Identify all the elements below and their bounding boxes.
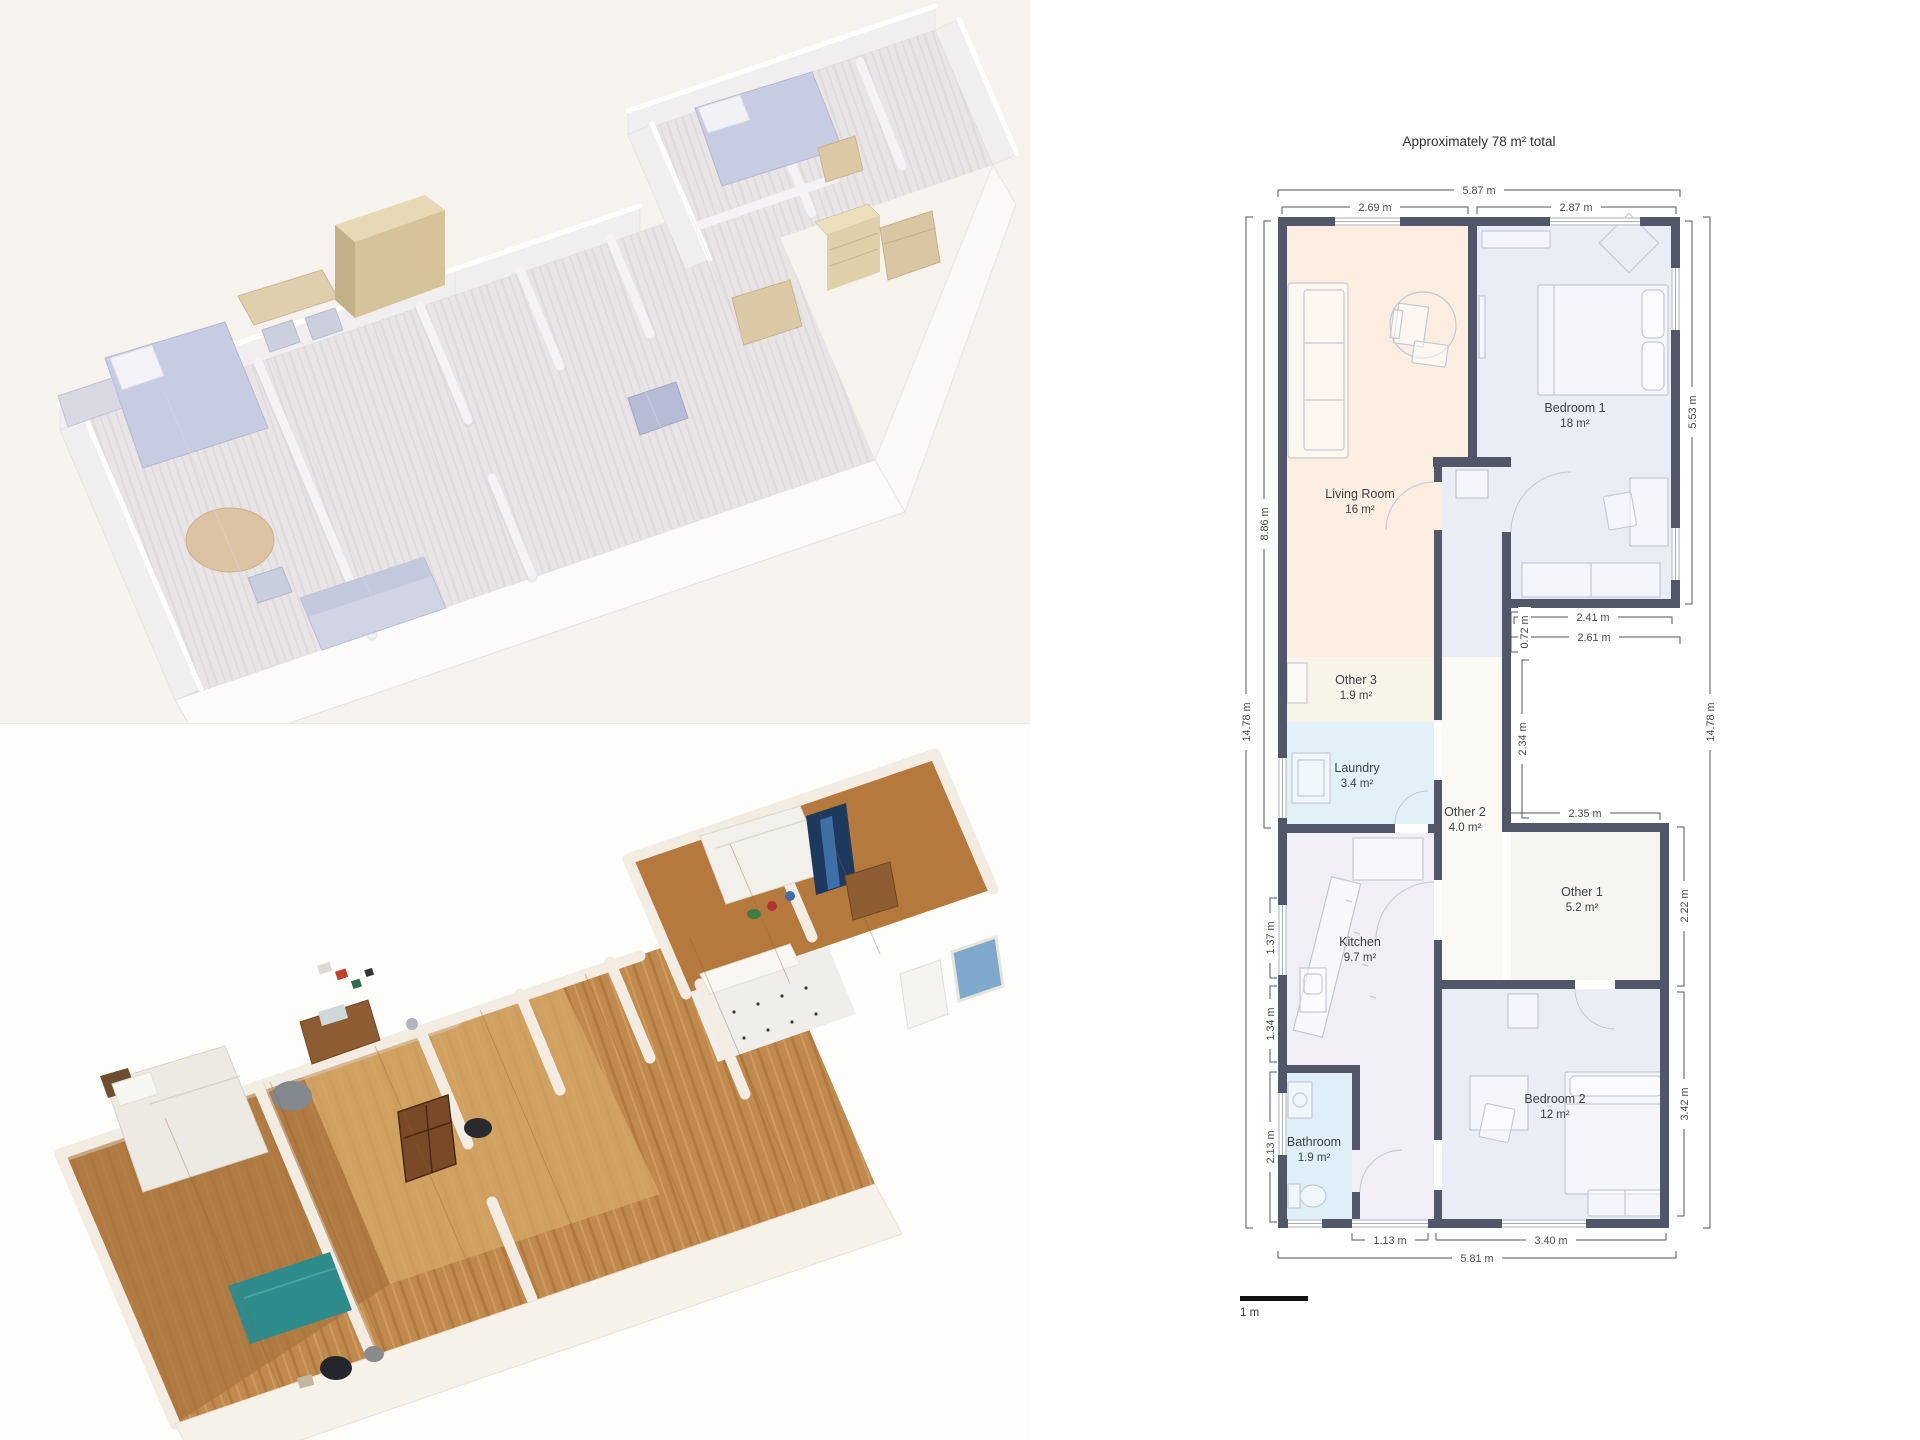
svg-text:12 m²: 12 m² [1540, 1109, 1570, 1121]
3d-model-render [0, 0, 1030, 723]
svg-text:Kitchen: Kitchen [1339, 935, 1381, 949]
plan-title: Approximately 78 m² total [1402, 134, 1555, 149]
floor-plan-drawing: Approximately 78 m² total [1030, 0, 1920, 1440]
dim-bottom-left: 1.13 m [1352, 1233, 1428, 1247]
svg-text:2.41 m: 2.41 m [1576, 612, 1609, 624]
svg-text:2.35 m: 2.35 m [1568, 808, 1601, 820]
dim-right-bedroom1: 5.53 m [1685, 221, 1699, 604]
svg-text:14.78 m: 14.78 m [1705, 702, 1717, 741]
svg-text:2.13 m: 2.13 m [1265, 1130, 1277, 1163]
window [1288, 1219, 1322, 1228]
svg-text:3.42 m: 3.42 m [1679, 1087, 1691, 1120]
svg-text:1.9 m²: 1.9 m² [1340, 690, 1373, 702]
svg-text:18 m²: 18 m² [1560, 418, 1590, 430]
scan-fridge [900, 960, 948, 1029]
svg-text:2.87 m: 2.87 m [1559, 202, 1592, 214]
svg-text:2.34 m: 2.34 m [1517, 722, 1529, 755]
dim-notch-step: 0.72 m [1511, 607, 1531, 657]
scan-clutter-red [767, 901, 777, 911]
scan-window-blue [952, 937, 1003, 1001]
scan-bag [364, 1346, 384, 1362]
dim-top-total: 5.87 m [1278, 184, 1680, 197]
svg-text:8.86 m: 8.86 m [1259, 507, 1271, 540]
scan-beanbag [272, 1081, 312, 1111]
svg-text:9.7 m²: 9.7 m² [1344, 952, 1377, 964]
dim-left-living: 8.86 m [1258, 221, 1271, 828]
dresser-symbol [1522, 563, 1660, 597]
toilet-symbol [1288, 1184, 1326, 1208]
window [1550, 217, 1640, 226]
sink-symbol [1300, 968, 1326, 1012]
svg-text:2.61 m: 2.61 m [1577, 632, 1610, 644]
dim-right-total: 14.78 m [1703, 217, 1717, 1228]
svg-text:1.9 m²: 1.9 m² [1298, 1152, 1331, 1164]
scale-bar: 1 m [1240, 1296, 1308, 1319]
bed-symbol [1565, 1072, 1667, 1194]
svg-text:Bedroom 1: Bedroom 1 [1544, 401, 1605, 415]
window [1352, 1219, 1428, 1228]
dim-left-total: 14.78 m [1240, 217, 1253, 1228]
svg-text:5.2 m²: 5.2 m² [1566, 902, 1599, 914]
dim-other1-width: 2.35 m [1510, 807, 1660, 820]
svg-text:3.4 m²: 3.4 m² [1341, 778, 1374, 790]
svg-text:1.34 m: 1.34 m [1265, 1007, 1277, 1040]
window [1278, 1093, 1287, 1155]
window [1278, 905, 1287, 975]
svg-text:Laundry: Laundry [1334, 761, 1380, 775]
screenshot-canvas: Approximately 78 m² total [0, 0, 1920, 1440]
svg-text:4.0 m²: 4.0 m² [1449, 822, 1482, 834]
svg-text:14.78 m: 14.78 m [1241, 702, 1253, 741]
dim-kitchen-lower: 1.34 m [1264, 986, 1277, 1062]
scan-clutter-blue [785, 891, 795, 901]
window [1335, 217, 1400, 226]
floor-plan-view: Approximately 78 m² total [1030, 0, 1920, 1440]
bench-symbol [1588, 1190, 1662, 1216]
dim-notch-inner: 2.41 m [1514, 611, 1672, 624]
svg-text:3.40 m: 3.40 m [1534, 1235, 1567, 1247]
svg-text:Bedroom 2: Bedroom 2 [1524, 1092, 1585, 1106]
3d-scan-render [0, 724, 1030, 1440]
tv-symbol [1479, 296, 1485, 358]
model-round-table [186, 508, 274, 572]
dim-notch-outer: 2.61 m [1509, 631, 1680, 644]
svg-text:Other 1: Other 1 [1561, 885, 1603, 899]
cabinet-symbol [1508, 994, 1538, 1028]
scan-backpack [320, 1356, 352, 1380]
dim-bedroom2-height: 3.42 m [1677, 992, 1691, 1216]
dim-top-bedroom1: 2.87 m [1477, 201, 1676, 214]
bed-symbol [1538, 285, 1668, 395]
svg-text:0.72 m: 0.72 m [1519, 615, 1531, 648]
dresser-symbol [1482, 231, 1550, 248]
window [1278, 758, 1287, 818]
cabinet-symbol [1287, 663, 1307, 703]
washer-symbol [1292, 753, 1330, 803]
dim-other1-height: 2.22 m [1677, 827, 1691, 986]
window [1671, 528, 1680, 580]
svg-text:1.13 m: 1.13 m [1373, 1235, 1406, 1247]
window [1502, 1219, 1586, 1228]
svg-text:1.37 m: 1.37 m [1265, 921, 1277, 954]
cabinet-symbol [1456, 470, 1488, 498]
svg-text:2.22 m: 2.22 m [1679, 889, 1691, 922]
bath-sink-symbol [1288, 1082, 1312, 1118]
dim-top-living: 2.69 m [1282, 201, 1468, 214]
dim-corridor-side: 2.34 m [1516, 660, 1529, 818]
scan-chair-dark [464, 1118, 492, 1138]
svg-text:5.87 m: 5.87 m [1462, 185, 1495, 197]
svg-text:5.53 m: 5.53 m [1687, 395, 1699, 428]
svg-text:Other 2: Other 2 [1444, 805, 1486, 819]
dim-bottom-right: 3.40 m [1436, 1233, 1666, 1247]
dim-bathroom-side: 2.13 m [1264, 1072, 1277, 1222]
3d-scan-view [0, 723, 1030, 1440]
svg-text:5.81 m: 5.81 m [1460, 1253, 1493, 1265]
dim-bottom-total: 5.81 m [1278, 1251, 1676, 1265]
counter-symbol [1353, 838, 1423, 880]
3d-model-view [0, 0, 1030, 723]
svg-text:Other 3: Other 3 [1335, 673, 1377, 687]
svg-text:2.69 m: 2.69 m [1358, 202, 1391, 214]
sofa-symbol [1288, 283, 1348, 458]
svg-text:Living Room: Living Room [1325, 487, 1394, 501]
svg-text:Bathroom: Bathroom [1287, 1135, 1341, 1149]
scale-bar-label: 1 m [1240, 1307, 1259, 1319]
window [1671, 268, 1680, 330]
dim-kitchen-recess: 1.37 m [1264, 898, 1277, 978]
model-shelf [880, 211, 940, 280]
svg-text:16 m²: 16 m² [1345, 504, 1375, 516]
